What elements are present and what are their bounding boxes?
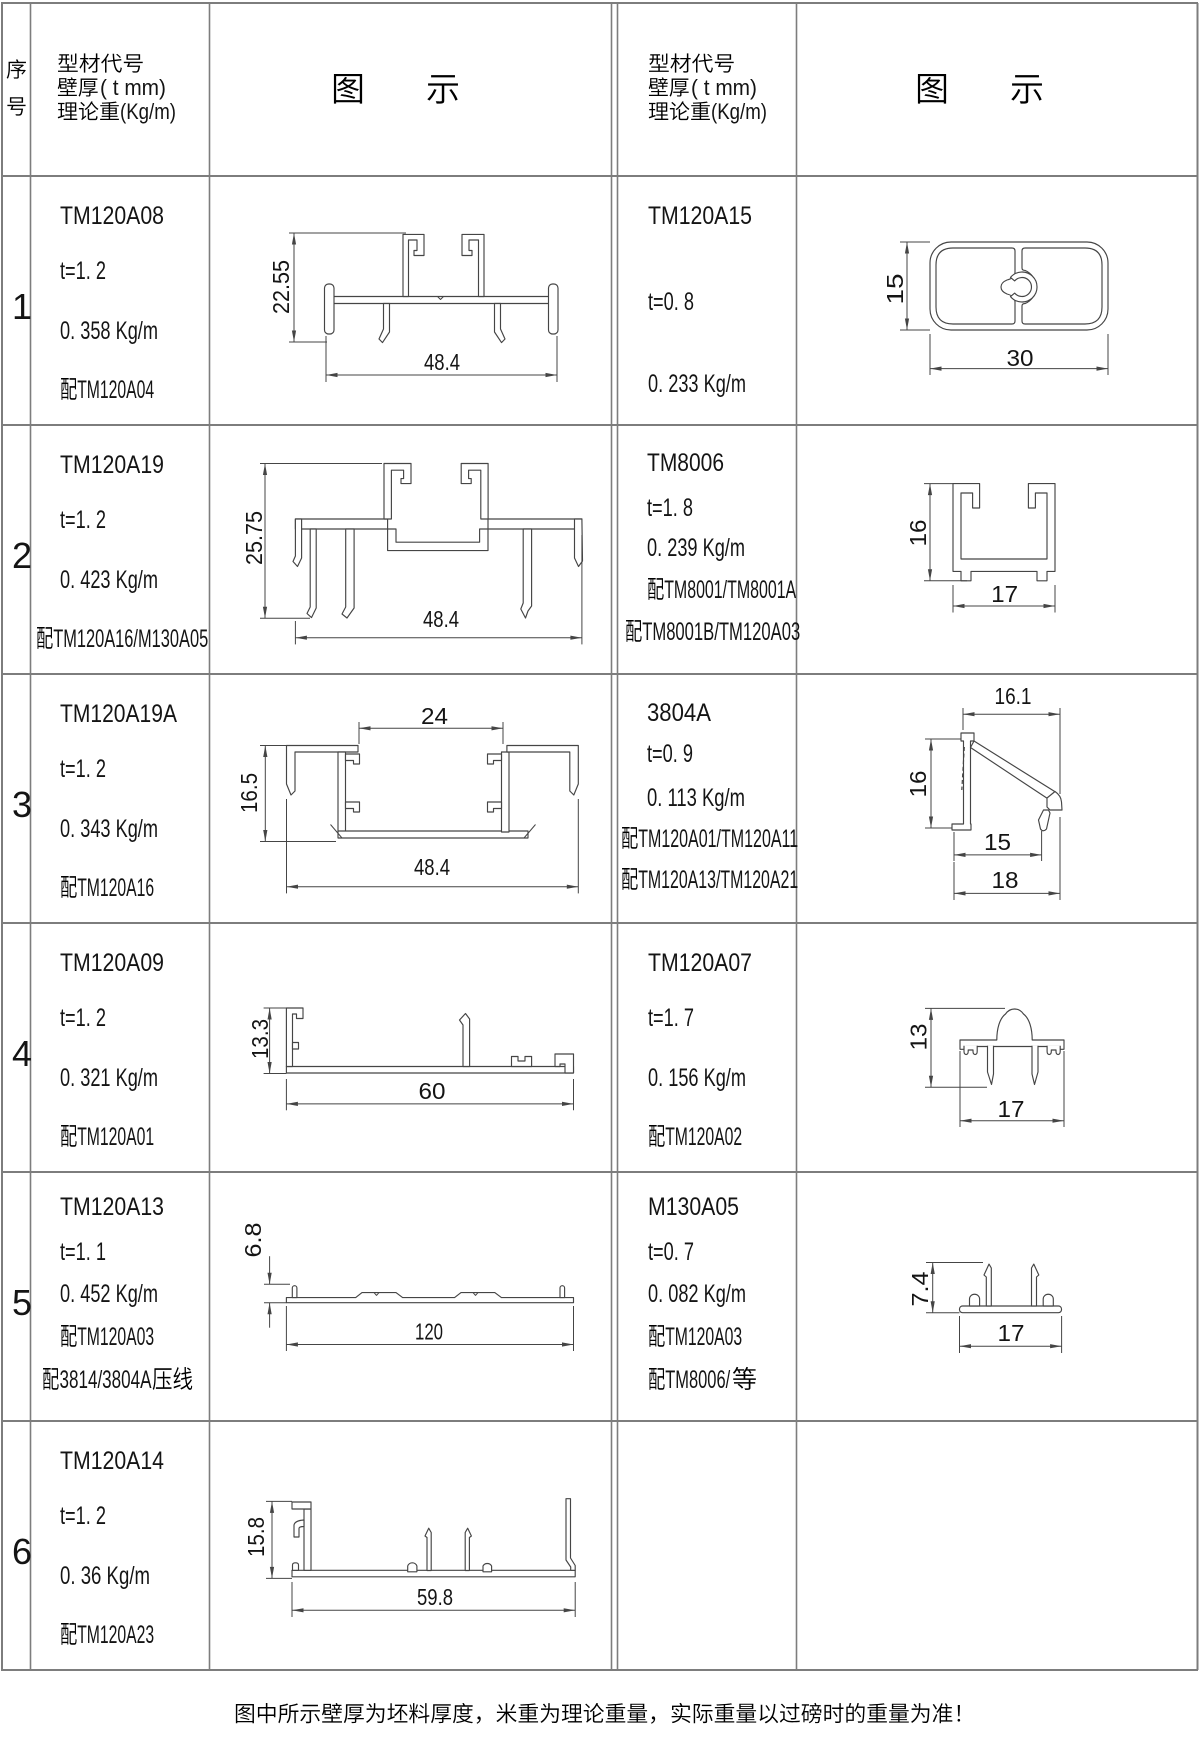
svg-text:TM120A03: TM120A03 [77, 1323, 154, 1351]
svg-text:16: 16 [905, 520, 931, 547]
svg-text:t=0. 7: t=0. 7 [648, 1238, 694, 1266]
svg-text:0. 452 Kg/m: 0. 452 Kg/m [60, 1280, 158, 1308]
svg-text:t=0. 9: t=0. 9 [647, 740, 693, 768]
svg-text:17: 17 [998, 1320, 1025, 1346]
svg-text:0. 113 Kg/m: 0. 113 Kg/m [647, 784, 745, 812]
svg-text:0. 358 Kg/m: 0. 358 Kg/m [60, 317, 158, 345]
svg-text:TM120A14: TM120A14 [60, 1447, 164, 1475]
svg-text:1: 1 [12, 286, 32, 327]
svg-text:17: 17 [991, 581, 1018, 607]
svg-text:TM120A16: TM120A16 [77, 874, 154, 902]
svg-text:(Kg/m): (Kg/m) [120, 99, 176, 124]
svg-text:t=1. 2: t=1. 2 [60, 506, 106, 534]
svg-text:3: 3 [12, 784, 32, 825]
svg-text:48.4: 48.4 [424, 349, 460, 375]
svg-text:15: 15 [984, 829, 1011, 855]
svg-text:TM8001/TM8001A: TM8001/TM8001A [664, 576, 796, 604]
svg-text:TM120A19A: TM120A19A [60, 700, 177, 728]
svg-text:22.55: 22.55 [268, 260, 294, 314]
svg-text:120: 120 [415, 1319, 443, 1345]
svg-text:2: 2 [12, 535, 32, 576]
svg-text:t=1. 8: t=1. 8 [647, 494, 693, 522]
svg-text:13.3: 13.3 [247, 1019, 273, 1059]
svg-text:TM120A08: TM120A08 [60, 202, 164, 230]
svg-text:4: 4 [12, 1033, 32, 1074]
svg-text:0. 423 Kg/m: 0. 423 Kg/m [60, 566, 158, 594]
svg-text:3804A: 3804A [647, 699, 711, 727]
svg-text:3814/3804A: 3814/3804A [60, 1366, 152, 1394]
svg-text:TM8006: TM8006 [647, 449, 724, 477]
svg-text:0. 233 Kg/m: 0. 233 Kg/m [648, 370, 746, 398]
svg-text:16.5: 16.5 [236, 773, 262, 813]
svg-text:TM120A13: TM120A13 [60, 1193, 164, 1221]
svg-text:59.8: 59.8 [417, 1584, 453, 1610]
svg-text:TM120A01: TM120A01 [77, 1123, 154, 1151]
svg-text:TM120A13/TM120A21: TM120A13/TM120A21 [638, 866, 798, 894]
svg-text:t=1. 7: t=1. 7 [648, 1004, 694, 1032]
svg-text:0. 321 Kg/m: 0. 321 Kg/m [60, 1064, 158, 1092]
svg-text:TM120A19: TM120A19 [60, 451, 164, 479]
svg-text:0. 082 Kg/m: 0. 082 Kg/m [648, 1280, 746, 1308]
svg-text:(Kg/m): (Kg/m) [711, 99, 767, 124]
svg-text:( t mm): ( t mm) [100, 75, 166, 100]
svg-text:t=1. 1: t=1. 1 [60, 1238, 106, 1266]
svg-text:24: 24 [421, 703, 448, 729]
svg-text:M130A05: M130A05 [648, 1193, 739, 1221]
svg-text:t=1. 2: t=1. 2 [60, 1004, 106, 1032]
svg-text:5: 5 [12, 1282, 32, 1323]
svg-text:t=1. 2: t=1. 2 [60, 257, 106, 285]
svg-text:0. 239 Kg/m: 0. 239 Kg/m [647, 534, 745, 562]
svg-text:0. 343 Kg/m: 0. 343 Kg/m [60, 815, 158, 843]
svg-text:15.8: 15.8 [243, 1517, 269, 1557]
svg-text:0. 156 Kg/m: 0. 156 Kg/m [648, 1064, 746, 1092]
svg-text:TM8006/: TM8006/ [665, 1366, 730, 1394]
svg-text:TM8001B/TM120A03: TM8001B/TM120A03 [642, 618, 800, 646]
svg-text:TM120A07: TM120A07 [648, 949, 752, 977]
svg-text:t=1. 2: t=1. 2 [60, 1502, 106, 1530]
svg-text:48.4: 48.4 [423, 606, 459, 632]
svg-text:0. 36 Kg/m: 0. 36 Kg/m [60, 1562, 150, 1590]
svg-text:60: 60 [419, 1078, 446, 1104]
svg-text:16.1: 16.1 [995, 683, 1032, 709]
svg-text:TM120A04: TM120A04 [77, 376, 154, 404]
svg-text:18: 18 [992, 867, 1019, 893]
svg-text:t=1. 2: t=1. 2 [60, 755, 106, 783]
svg-text:6.8: 6.8 [240, 1223, 266, 1258]
svg-text:TM120A23: TM120A23 [77, 1621, 154, 1649]
svg-text:( t mm): ( t mm) [691, 75, 757, 100]
svg-text:16: 16 [905, 771, 931, 798]
svg-text:17: 17 [998, 1096, 1025, 1122]
svg-text:7.4: 7.4 [907, 1271, 933, 1306]
svg-text:TM120A01/TM120A11: TM120A01/TM120A11 [638, 825, 798, 853]
svg-text:TM120A02: TM120A02 [665, 1123, 742, 1151]
svg-text:48.4: 48.4 [414, 854, 450, 880]
svg-text:6: 6 [12, 1531, 32, 1572]
svg-text:TM120A03: TM120A03 [665, 1323, 742, 1351]
svg-text:TM120A16/M130A05: TM120A16/M130A05 [53, 625, 208, 653]
svg-text:t=0. 8: t=0. 8 [648, 288, 694, 316]
svg-text:13: 13 [906, 1024, 932, 1051]
svg-text:15: 15 [882, 274, 908, 305]
svg-text:TM120A09: TM120A09 [60, 949, 164, 977]
svg-text:TM120A15: TM120A15 [648, 202, 752, 230]
svg-text:25.75: 25.75 [241, 511, 267, 565]
svg-text:30: 30 [1007, 345, 1034, 371]
